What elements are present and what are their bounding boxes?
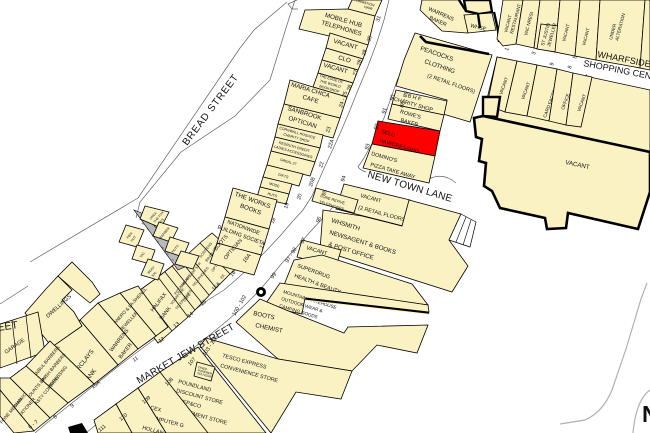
svg-text:N: N: [642, 401, 650, 427]
